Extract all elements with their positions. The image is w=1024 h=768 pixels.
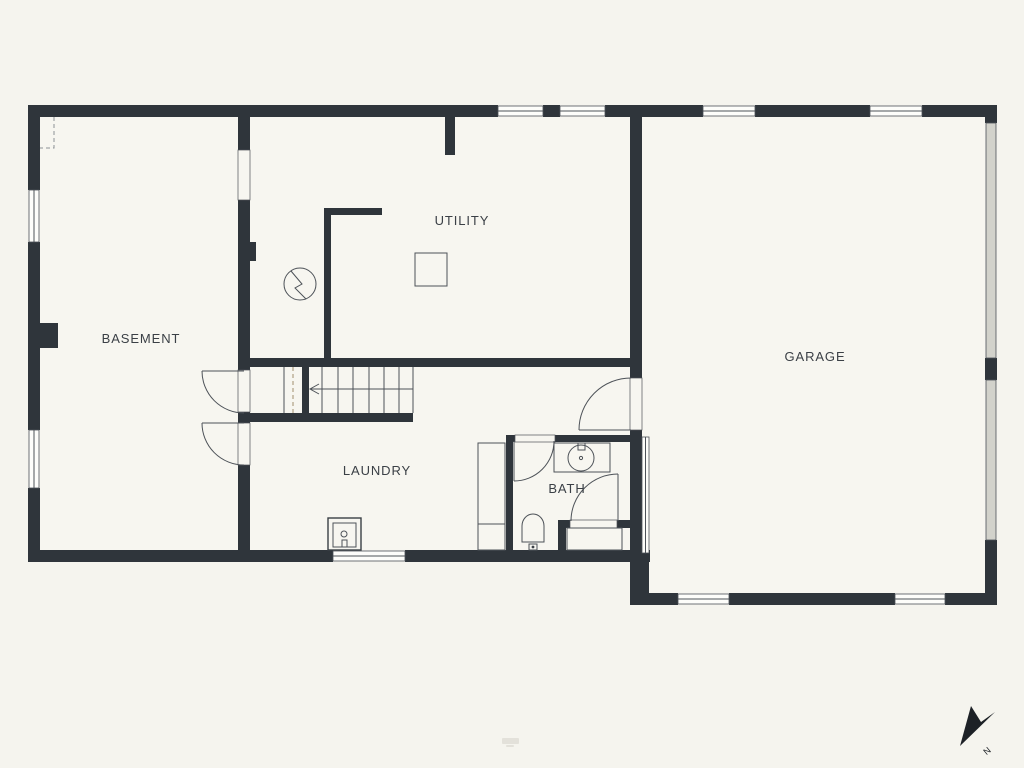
window	[29, 190, 39, 242]
window	[895, 594, 945, 604]
room-label-basement: BASEMENT	[102, 331, 181, 346]
window	[642, 437, 649, 553]
window	[678, 594, 729, 604]
room-label-bath: BATH	[548, 481, 585, 496]
room-label-laundry: LAUNDRY	[343, 463, 411, 478]
window	[703, 106, 755, 116]
window	[870, 106, 922, 116]
window	[498, 106, 543, 116]
room-label-utility: UTILITY	[435, 213, 490, 228]
garage-doors	[986, 123, 996, 540]
room-label-garage: GARAGE	[784, 349, 845, 364]
watermark	[502, 738, 519, 747]
floor-plan: BASEMENT UTILITY LAUNDRY BATH GARAGE N	[0, 0, 1024, 768]
window	[560, 106, 605, 116]
window	[29, 430, 39, 488]
window	[333, 551, 405, 561]
north-arrow-icon: N	[960, 706, 995, 757]
north-label: N	[981, 745, 992, 757]
garage-door	[986, 380, 996, 540]
garage-door	[986, 123, 996, 358]
